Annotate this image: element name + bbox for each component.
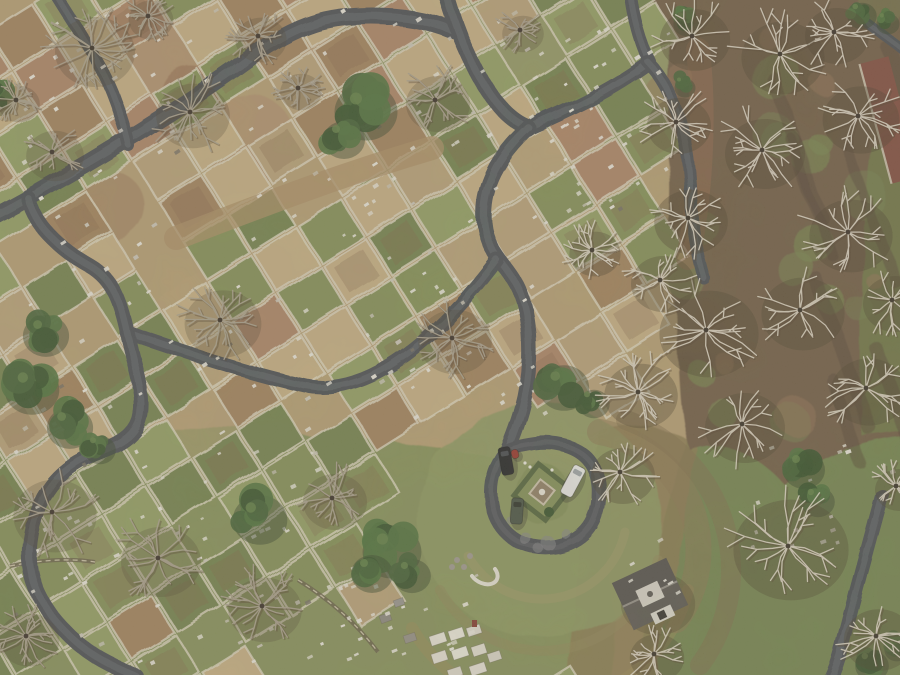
grain-overlay — [0, 0, 900, 675]
aerial-photo-cemetery — [0, 0, 900, 675]
aerial-photo-canvas — [0, 0, 900, 675]
